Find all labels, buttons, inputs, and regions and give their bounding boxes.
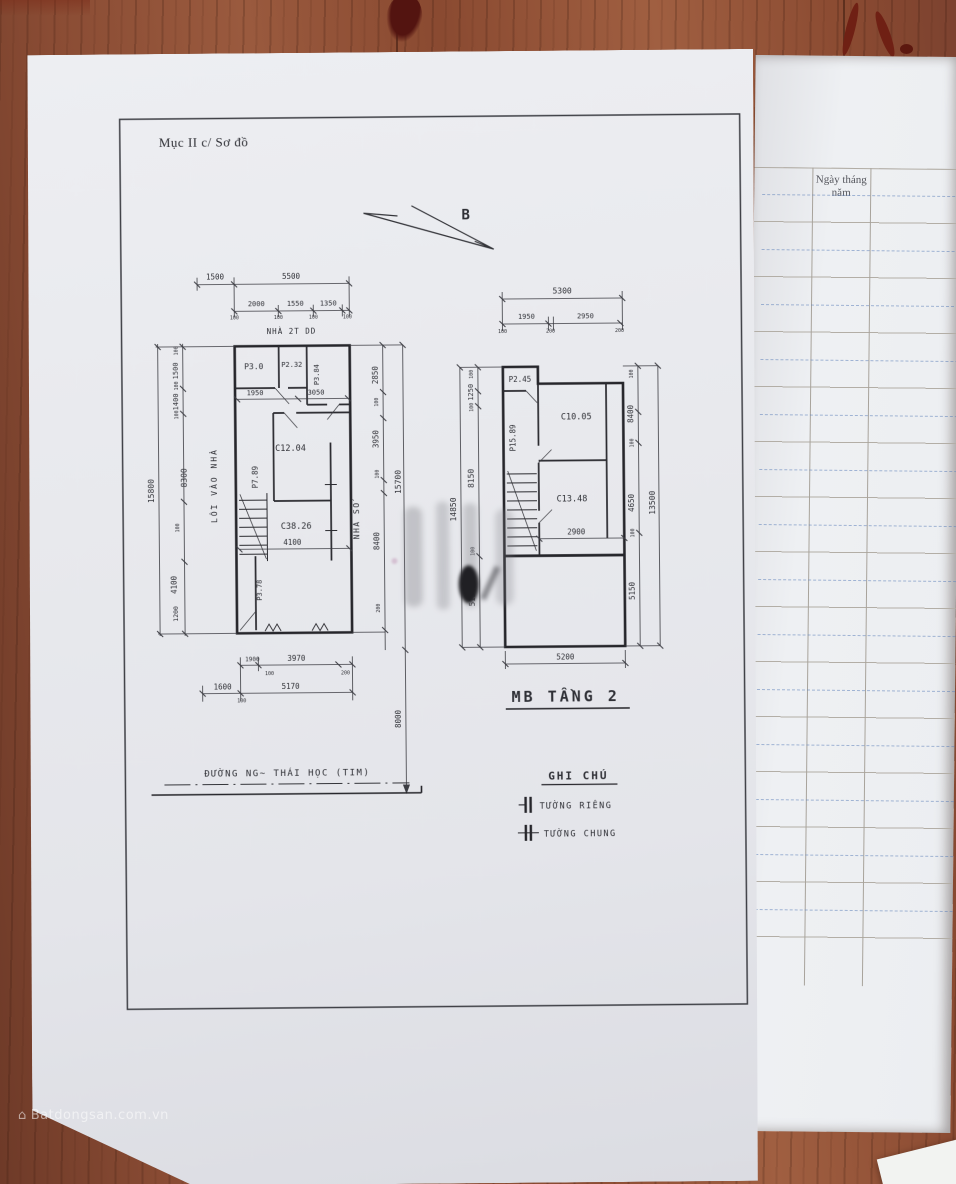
table-header-cell: Ngày tháng năm [812, 174, 870, 201]
dim-label: 200 [376, 604, 382, 613]
dim-label: 3950 [371, 430, 380, 449]
dim-label: 1400 [172, 393, 180, 410]
dim-label: 14850 [449, 497, 458, 521]
watermark-text: Batdongsan.com.vn [31, 1108, 169, 1123]
neighbor-house-label: NHÀ 2T DD [267, 327, 317, 336]
dim-label: 4100 [170, 575, 179, 594]
dim-label: 100 [629, 438, 635, 447]
room-label-p384: P3.84 [313, 364, 321, 385]
table-header-line2: năm [812, 187, 870, 201]
photo-of-floor-plan: Ngày tháng năm Mục II c/ Sơ đồ B [0, 0, 956, 1184]
shared-wall-symbol [518, 825, 539, 841]
dim-label: 8300 [180, 468, 189, 488]
dim-label: 8400 [626, 404, 635, 423]
street: ĐƯỜNG NG~ THÁI HỌC (TIM) [151, 766, 421, 795]
dim-label: 1550 [287, 300, 304, 308]
dim-label: 100 [498, 329, 507, 335]
floor1-stairs [239, 493, 268, 561]
room-label-p789: P7.89 [251, 466, 260, 489]
dim-label: 1500 [206, 272, 225, 281]
dim-label: 5200 [556, 652, 575, 661]
section-label: Mục II c/ Sơ đồ [159, 134, 249, 150]
dim-label: 100 [174, 410, 180, 419]
dim-label: 3970 [287, 654, 306, 663]
dim-label: 100 [237, 698, 246, 704]
legend: GHI CHÚ TƯỜNG RIÊNG TƯỜNG CHUNG [517, 769, 618, 841]
private-wall-symbol [519, 797, 531, 813]
dim-label: 100 [230, 315, 239, 321]
dim-label: 2950 [577, 312, 594, 320]
floor2-front-wall [504, 555, 624, 556]
house-number-label: NHÀ SỐ [350, 499, 361, 539]
middle-dimension-chains: 2850 100 3950 100 8400 200 15700 8000 [350, 342, 410, 793]
room-label-p378: P3.78 [256, 580, 264, 601]
dim-label: 5300 [552, 286, 572, 295]
dim-label: 3050 [308, 389, 325, 397]
dim-label: 4100 [283, 538, 302, 547]
dim-label: 100 [174, 381, 180, 390]
dim-label: 8150 [467, 468, 476, 488]
dim-label: 5500 [282, 272, 301, 281]
floor2-dimension-lines [456, 291, 663, 670]
room-label-p245: P2.45 [509, 375, 532, 384]
ink-stain [872, 10, 898, 59]
dim-label: 100 [629, 369, 635, 378]
dim-label: 1950 [518, 313, 535, 321]
street-line [151, 786, 421, 795]
dim-label: 15700 [394, 470, 403, 494]
dim-label: 8000 [394, 709, 403, 728]
dim-label: 5170 [282, 682, 301, 691]
street-centerline [164, 783, 409, 785]
dim-label: 1950 [247, 389, 264, 397]
dim-label: 200 [615, 328, 624, 334]
dim-label: 1250 [467, 384, 475, 401]
floor2-title: MB TẦNG 2 [511, 686, 619, 706]
dim-label: 4650 [627, 493, 636, 512]
dim-label: 100 [265, 671, 274, 677]
room-label-c3826: C38.26 [281, 522, 312, 532]
legend-title: GHI CHÚ [548, 769, 608, 783]
dim-label: 1200 [172, 606, 180, 622]
north-label: B [461, 207, 470, 223]
room-label-p1589: P15.89 [508, 424, 517, 451]
dim-label: 1350 [320, 299, 337, 307]
dim-label: 100 [630, 528, 636, 537]
dim-label: 100 [274, 315, 283, 321]
legend-item-label: TƯỜNG CHUNG [544, 827, 617, 840]
dim-label: 5150 [628, 581, 637, 600]
watermark: ⌂ Batdongsan.com.vn [18, 1108, 169, 1123]
dim-label: 200 [546, 329, 555, 335]
ink-stain [382, 0, 426, 45]
floor2-partitions [503, 383, 607, 556]
dim-label: 8400 [372, 532, 381, 551]
ruled-note-sheet: Ngày tháng năm [744, 55, 956, 1133]
entry-path-label: LỐI VÀO NHÀ [208, 448, 220, 523]
room-label-p30: P3.0 [244, 362, 264, 371]
floor-plan-sheet: Mục II c/ Sơ đồ B [23, 49, 763, 1184]
dim-label: 200 [341, 670, 350, 676]
dim-label: 2000 [248, 300, 265, 308]
room-label-c1348: C13.48 [557, 494, 588, 504]
dim-label: 2900 [567, 527, 586, 536]
watermark-logo-icon: ⌂ [18, 1108, 27, 1123]
room-label-p232: P2.32 [281, 361, 302, 369]
room-label-c1204: C12.04 [275, 444, 306, 454]
table-header-line1: Ngày tháng [812, 174, 870, 188]
dim-label: 13500 [648, 490, 657, 514]
floor-plan-drawing: Mục II c/ Sơ đồ B [23, 49, 763, 1184]
dim-label: 100 [175, 523, 181, 532]
title-underline [506, 708, 630, 709]
dim-label: 15800 [147, 479, 156, 503]
legend-item-label: TƯỜNG RIÊNG [540, 799, 613, 812]
floor2-plan: 5300 1950 2950 100 200 200 P2.45 C10.05 … [447, 286, 664, 710]
dim-label: 100 [469, 370, 475, 379]
floor1-plan: NHÀ 2T DD 1500 5500 2000 1550 1350 100 1… [145, 271, 363, 705]
dim-label: 100 [343, 314, 352, 320]
dim-label: 2850 [371, 366, 380, 385]
legend-underline [541, 784, 617, 785]
drawing-frame [120, 114, 748, 1009]
ink-stain [900, 44, 913, 54]
dim-label: 100 [174, 346, 180, 355]
dim-label: 100 [375, 470, 381, 479]
dim-label: 1900 [245, 656, 260, 663]
door-zigzag-symbols [265, 624, 328, 632]
room-label-c1005: C10.05 [561, 412, 592, 422]
dim-label: 1500 [172, 362, 180, 379]
dim-label: 100 [309, 315, 318, 321]
dim-label: 1600 [214, 682, 233, 691]
ink-stain [0, 0, 90, 16]
street-label: ĐƯỜNG NG~ THÁI HỌC (TIM) [204, 766, 370, 779]
table-row-lines [746, 167, 956, 987]
dim-label: 100 [374, 398, 380, 407]
dim-label: 100 [469, 403, 475, 412]
north-arrow [363, 205, 493, 250]
